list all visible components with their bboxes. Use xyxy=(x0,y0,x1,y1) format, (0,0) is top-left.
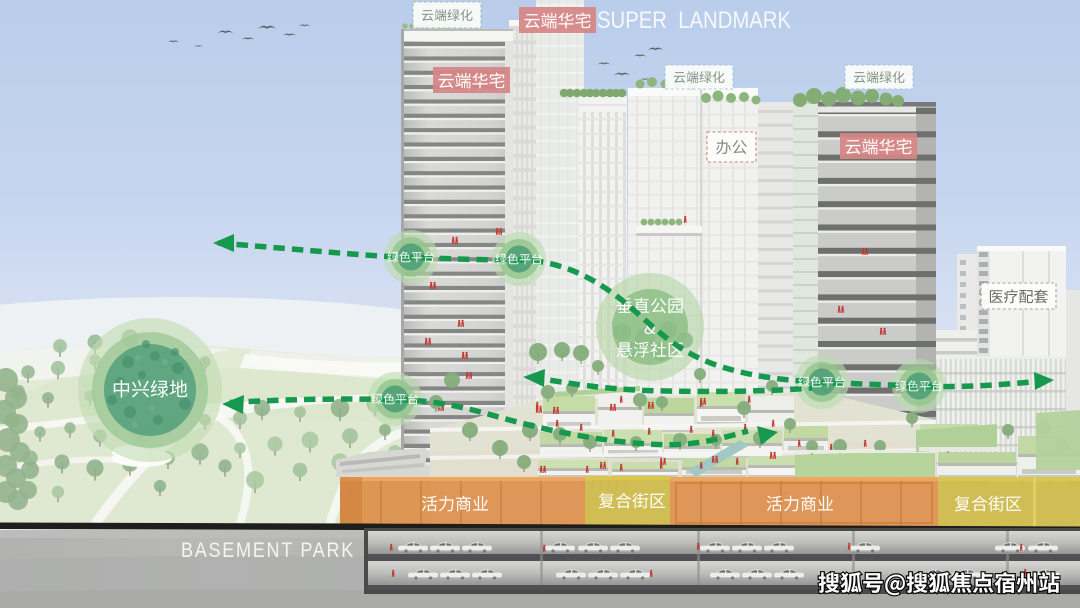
svg-text:SUPER LANDMARK: SUPER LANDMARK xyxy=(597,7,791,34)
svg-text:BASEMENT PARK: BASEMENT PARK xyxy=(181,539,355,562)
